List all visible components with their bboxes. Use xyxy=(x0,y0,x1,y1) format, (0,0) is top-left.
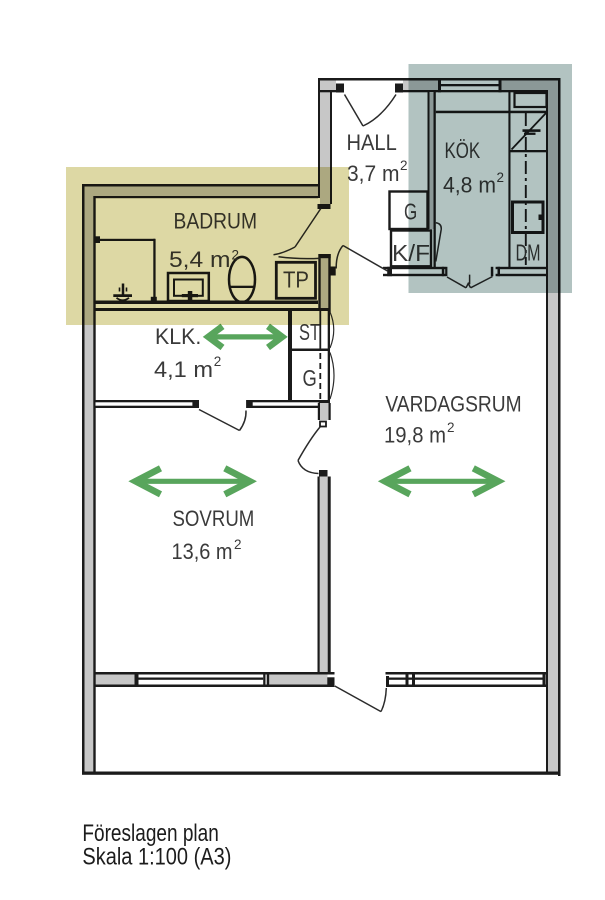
svg-text:2: 2 xyxy=(447,420,455,435)
svg-text:HALL: HALL xyxy=(347,130,397,155)
svg-text:13,6 m: 13,6 m xyxy=(172,539,233,564)
svg-text:VARDAGSRUM: VARDAGSRUM xyxy=(385,392,521,417)
svg-text:Skala 1:100 (A3): Skala 1:100 (A3) xyxy=(82,844,231,871)
svg-text:2: 2 xyxy=(214,354,222,369)
svg-text:KLK.: KLK. xyxy=(155,324,201,349)
svg-text:SOVRUM: SOVRUM xyxy=(173,506,255,531)
svg-text:2: 2 xyxy=(234,537,242,552)
svg-text:3,7 m: 3,7 m xyxy=(347,161,400,186)
svg-text:4,1 m: 4,1 m xyxy=(154,357,213,382)
svg-text:G: G xyxy=(303,365,317,391)
svg-text:19,8 m: 19,8 m xyxy=(384,423,446,448)
svg-text:2: 2 xyxy=(400,158,408,173)
